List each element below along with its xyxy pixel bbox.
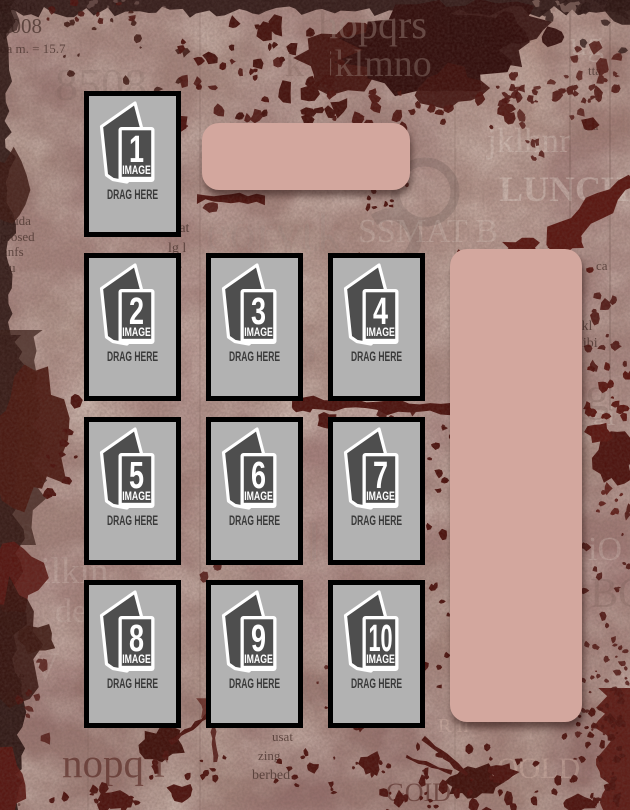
svg-text:6: 6	[251, 453, 266, 496]
svg-text:IMAGE: IMAGE	[122, 327, 151, 339]
svg-text:IMAGE: IMAGE	[366, 654, 395, 666]
svg-text:IMAGE: IMAGE	[122, 165, 151, 177]
svg-text:7: 7	[373, 453, 388, 496]
svg-text:9: 9	[251, 616, 266, 659]
svg-text:IMAGE: IMAGE	[244, 654, 273, 666]
svg-text:8: 8	[129, 616, 144, 659]
svg-text:IMAGE: IMAGE	[244, 327, 273, 339]
svg-text:3: 3	[251, 289, 266, 332]
svg-text:IMAGE: IMAGE	[122, 654, 151, 666]
svg-text:IMAGE: IMAGE	[244, 491, 273, 503]
svg-text:10: 10	[368, 617, 392, 660]
svg-text:1: 1	[129, 127, 144, 170]
svg-text:IMAGE: IMAGE	[366, 327, 395, 339]
svg-text:IMAGE: IMAGE	[122, 491, 151, 503]
svg-text:5: 5	[129, 453, 144, 496]
svg-text:4: 4	[373, 289, 389, 332]
svg-text:2: 2	[129, 289, 144, 332]
svg-text:IMAGE: IMAGE	[366, 491, 395, 503]
